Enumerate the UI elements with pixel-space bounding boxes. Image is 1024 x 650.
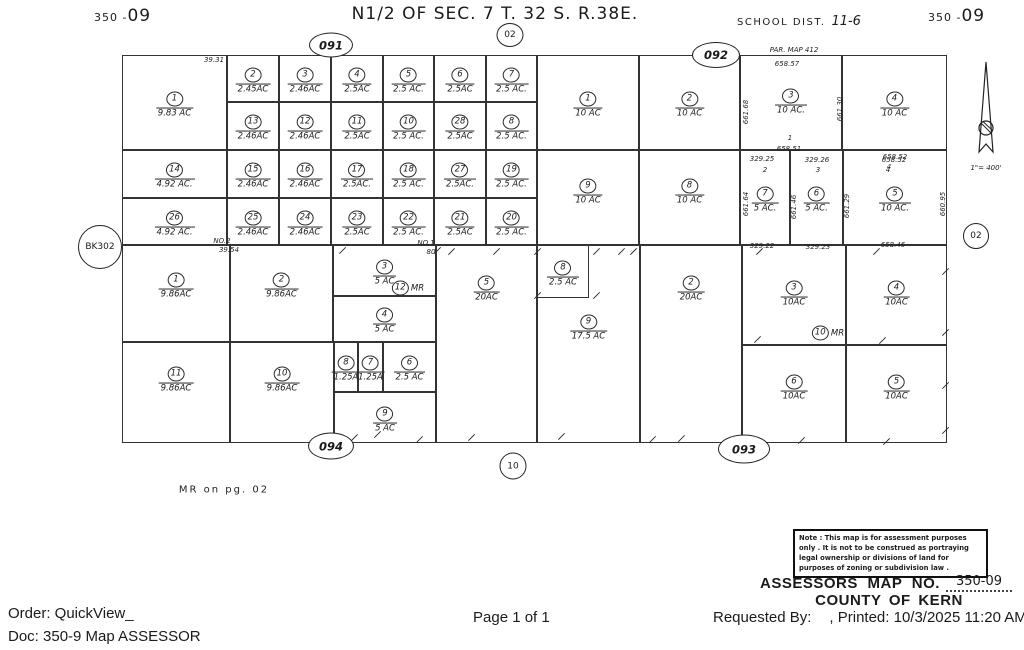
assessor-map-no-label: ASSESSORS MAP NO. [760, 575, 940, 592]
parcel-number: 22 [400, 210, 417, 225]
parcel-area: 10 AC [573, 107, 602, 118]
parcel-label: 520AC [473, 272, 500, 303]
parcel-label: 282.5AC [445, 111, 474, 142]
parcel-number: 1 [580, 91, 597, 106]
parcel-label: 19.83 AC [156, 87, 193, 118]
parcel-label: 410AC [883, 277, 910, 308]
parcel-area: 2.5AC [342, 131, 371, 142]
parcel-number: 8 [503, 115, 520, 130]
parcel-label: 45 AC [373, 304, 397, 335]
parcel-label: 192.5 AC. [494, 159, 529, 190]
parcel-number: 15 [245, 163, 262, 178]
map-badge-02: 02 [497, 23, 524, 47]
parcel-area: 10 AC [675, 107, 704, 118]
disclaimer-line: Note : This map is for assessment purpos… [799, 534, 982, 544]
parcel-label: 410 AC [880, 88, 909, 119]
footer-requested-label: Requested By: [713, 609, 811, 626]
parcel-area: 9.86AC [159, 289, 194, 300]
assessor-map-no-line: ASSESSORS MAP NO. 350-09 [760, 574, 1012, 592]
map-annotation: 661.30 [836, 97, 844, 122]
parcel-label: 264.92 AC. [154, 206, 194, 237]
parcel-number: 28 [452, 115, 469, 130]
parcel-area: 2.46AC [236, 131, 271, 142]
parcel-number: 10 [400, 115, 417, 130]
parcel-number: 1 [168, 273, 185, 288]
parcel-number: 2 [273, 273, 290, 288]
mr-label: MR [831, 328, 844, 338]
parcel-label: 310 AC. [775, 85, 807, 116]
parcel-label: 82.5 AC. [494, 111, 529, 142]
map-annotation: 329.25 [750, 155, 775, 163]
parcel-area: 5 AC. [752, 203, 779, 214]
map-badge-02: 02 [963, 223, 989, 249]
map-annotation: 658.57 [775, 60, 800, 68]
mr-note: 10MR [812, 326, 844, 341]
parcel-label: 102.5 AC. [391, 111, 426, 142]
parcel-area: 20AC [473, 292, 500, 303]
parcel-number: 4 [886, 92, 903, 107]
map-annotation: 658.51 [777, 145, 802, 153]
parcel-label: 19.86AC [159, 269, 194, 300]
north-arrow-icon [976, 58, 996, 158]
parcel-number: 6 [785, 375, 802, 390]
parcel-number: 20 [503, 210, 520, 225]
parcel-number: 7 [362, 356, 379, 371]
parcel-label: 172.5AC. [341, 159, 373, 190]
parcel-number: 3 [376, 259, 393, 274]
map-annotation: MR on pg. 02 [179, 485, 269, 496]
map-annotation: 1"= 400' [970, 164, 1001, 172]
parcel-number: 10 [274, 367, 291, 382]
footer-order: Order: QuickView_ [8, 605, 134, 622]
parcel-area: 10AC [781, 391, 808, 402]
parcel-area: 1.25A [356, 372, 385, 383]
parcel-label: 222.5 AC. [391, 206, 426, 237]
map-annotation: 658.52 [883, 153, 908, 161]
parcel-number: 16 [297, 163, 314, 178]
parcel-number: 3 [785, 281, 802, 296]
map-annotation: 39.31 [204, 56, 224, 64]
parcel-area: 2.46AC [288, 83, 323, 94]
parcel-number: 23 [349, 210, 366, 225]
map-badge-10: 10 [500, 453, 527, 480]
map-annotation: 80 [427, 248, 436, 256]
map-annotation: NO.1 [417, 239, 434, 247]
footer-page-count: Page 1 of 1 [473, 609, 550, 626]
parcel-area: 2.5AC [342, 83, 371, 94]
map-badge-bk302: BK302 [78, 225, 122, 269]
map-annotation: 661.64 [742, 192, 750, 217]
parcel-label: 112.5AC [342, 111, 371, 142]
parcel-area: 5 AC [373, 422, 397, 433]
map-annotation: 661.68 [742, 100, 750, 125]
parcel-area: 2.46AC [288, 179, 323, 190]
map-annotation: 661.29 [843, 194, 851, 219]
parcel-number: 12 [297, 115, 314, 130]
parcel-label: 510 AC. [879, 183, 911, 214]
parcel-number: 24 [297, 210, 314, 225]
parcel-area: 2.5 AC [394, 372, 426, 383]
footer-printed: , Printed: 10/3/2025 11:20 AM [829, 609, 1024, 626]
map-badge-093: 093 [718, 435, 770, 464]
parcel-label: 162.46AC [288, 159, 323, 190]
parcel-area: 2.5 AC. [391, 179, 426, 190]
parcel-label: 82.5 AC [547, 256, 579, 287]
parcel-label: 32.46AC [288, 63, 323, 94]
parcel-area: 2.5AC [342, 226, 371, 237]
parcel-area: 2.5 AC. [494, 131, 529, 142]
parcel-area: 10 AC [573, 195, 602, 206]
parcel-label: 212.5AC [445, 206, 474, 237]
map-annotation: 329.26 [805, 156, 830, 164]
parcel-number: 11 [168, 367, 185, 382]
map-annotation: 1 [788, 134, 792, 142]
parcel-number: 21 [452, 210, 469, 225]
parcel-label: 202.5 AC. [494, 206, 529, 237]
parcel-label: 152.46AC [236, 159, 271, 190]
parcel-area: 2.5AC [445, 83, 474, 94]
parcel-label: 71.25A [356, 352, 385, 383]
parcel-area: 2.5 AC [547, 276, 579, 287]
map-annotation: PAR. MAP 412 [770, 46, 819, 54]
footer-doc: Doc: 350-9 Map ASSESSOR [8, 628, 201, 645]
parcel-label: 72.5 AC. [494, 63, 529, 94]
map-annotation: 661.46 [790, 195, 798, 220]
parcel-label: 610AC [781, 371, 808, 402]
parcel-area: 9.86AC [159, 383, 194, 394]
parcel-area: 10 AC [880, 108, 909, 119]
parcel-area: 4.92 AC. [154, 226, 194, 237]
parcel-area: 2.5 AC. [494, 179, 529, 190]
parcel-number: 5 [886, 187, 903, 202]
parcel-label: 62.5AC [445, 63, 474, 94]
parcel-label: 109.86AC [265, 363, 300, 394]
parcel-area: 20AC [678, 292, 705, 303]
map-badge-091: 091 [309, 33, 353, 58]
parcel-area: 2.5 AC. [494, 226, 529, 237]
parcel-number: 4 [376, 308, 393, 323]
disclaimer-line: purposes of zoning or subdivision law . [799, 564, 982, 574]
parcel-area: 2.5 AC. [391, 131, 426, 142]
parcel-number: 4 [349, 67, 366, 82]
parcel-number: 9 [377, 406, 394, 421]
parcel-label: 144.92 AC. [154, 159, 194, 190]
parcel-number: 25 [245, 210, 262, 225]
parcel-label: 242.46AC [288, 206, 323, 237]
map-annotation: 3 [816, 166, 820, 174]
parcel-number: 6 [808, 187, 825, 202]
parcel-label: 42.5AC [342, 63, 371, 94]
parcel-area: 2.5AC. [341, 179, 373, 190]
parcel-area: 2.46AC [236, 226, 271, 237]
parcel-label: 272.5AC. [444, 159, 476, 190]
map-badge-092: 092 [692, 42, 740, 68]
map-annotation: 660.95 [939, 192, 947, 217]
map-annotation: 329.22 [750, 242, 775, 250]
parcel-area: 10AC [883, 391, 910, 402]
assessor-map-number: 350-09 [946, 574, 1012, 592]
map-annotation: 658.46 [881, 241, 906, 249]
parcel-number: 7 [503, 67, 520, 82]
parcel-number: 9 [580, 179, 597, 194]
parcel-area: 2.45AC [236, 83, 271, 94]
parcel-number: 7 [757, 187, 774, 202]
parcel-label: 182.5 AC. [391, 159, 426, 190]
map-annotation: 329.23 [806, 243, 831, 251]
parcel-area: 10 AC. [775, 105, 807, 116]
parcel-label: 252.46AC [236, 206, 271, 237]
parcel-number: 6 [401, 356, 418, 371]
parcel-number: 2 [681, 91, 698, 106]
parcel-label: 310AC [781, 277, 808, 308]
parcel-area: 4.92 AC. [154, 179, 194, 190]
parcel-label: 810 AC [675, 175, 704, 206]
parcel-label: 65 AC. [803, 183, 830, 214]
parcel-label: 52.5 AC. [391, 63, 426, 94]
parcel-area: 9.86AC [264, 289, 299, 300]
parcel-number: 3 [297, 67, 314, 82]
parcel-number: 8 [681, 179, 698, 194]
parcel-area: 2.5 AC. [391, 83, 426, 94]
parcel-label: 95 AC [373, 402, 397, 433]
parcel-number: 1 [166, 91, 183, 106]
parcel-number: 11 [349, 115, 366, 130]
parcel-label: 119.86AC [159, 363, 194, 394]
parcel-label: 910 AC [573, 175, 602, 206]
parcel-number: 2 [245, 67, 262, 82]
parcel-number: 26 [166, 210, 183, 225]
parcel-number: 8 [554, 260, 571, 275]
parcel-label: 232.5AC [342, 206, 371, 237]
parcel-number: 12 [392, 281, 409, 296]
parcel-number: 5 [400, 67, 417, 82]
parcel-area: 2.5AC. [444, 179, 476, 190]
parcel-label: 510AC [883, 371, 910, 402]
parcel-number: 14 [166, 163, 183, 178]
parcel-label: 210 AC [675, 87, 704, 118]
parcel-number: 10 [812, 326, 829, 341]
parcel-area: 10AC [781, 297, 808, 308]
parcel-number: 27 [451, 163, 468, 178]
disclaimer-line: legal ownership or divisions of land for [799, 554, 982, 564]
parcel-area: 2.5AC [445, 131, 474, 142]
parcel-number: 5 [888, 375, 905, 390]
map-annotation: 2 [763, 166, 767, 174]
parcel-number: 8 [338, 356, 355, 371]
parcel-area: 10AC [883, 297, 910, 308]
parcel-area: 2.46AC [236, 179, 271, 190]
parcel-area: 10 AC [675, 195, 704, 206]
map-annotation: 4 [887, 163, 891, 171]
parcel-number: 9 [580, 315, 597, 330]
parcel-label: 122.46AC [288, 111, 323, 142]
parcel-label: 75 AC. [752, 183, 779, 214]
parcel-label: 29.86AC [264, 269, 299, 300]
parcel-number: 3 [782, 89, 799, 104]
parcel-label: 110 AC [573, 87, 602, 118]
parcel-label: 22.45AC [236, 63, 271, 94]
parcel-label: 132.46AC [236, 111, 271, 142]
disclaimer-line: only . It is not to be construed as port… [799, 544, 982, 554]
parcel-label: 917.5 AC [570, 311, 607, 342]
parcel-area: 5 AC [373, 324, 397, 335]
map-annotation: NO.2 [213, 237, 230, 245]
parcel-area: 2.46AC [288, 226, 323, 237]
parcel-label: 220AC [678, 272, 705, 303]
map-badge-094: 094 [308, 433, 354, 460]
parcel-area: 17.5 AC [570, 331, 607, 342]
map-annotation: 39.54 [219, 246, 239, 254]
parcel-number: 2 [682, 276, 699, 291]
parcel-number: 18 [400, 163, 417, 178]
parcel-area: 9.83 AC [156, 107, 193, 118]
parcel-area: 2.46AC [288, 131, 323, 142]
parcel-number: 13 [245, 115, 262, 130]
disclaimer-note: Note : This map is for assessment purpos… [793, 529, 988, 578]
parcel-area: 2.5AC [445, 226, 474, 237]
parcel-label: 62.5 AC [394, 352, 426, 383]
parcel-number: 17 [348, 163, 365, 178]
parcel-area: 10 AC. [879, 203, 911, 214]
county-name: COUNTY OF KERN [763, 592, 1015, 609]
parcel-area: 5 AC. [803, 203, 830, 214]
parcel-area: 2.5 AC. [391, 226, 426, 237]
parcel-number: 19 [503, 163, 520, 178]
parcel-number: 4 [888, 281, 905, 296]
mr-label: MR [411, 283, 424, 293]
footer-requested: Requested By:, Printed: 10/3/2025 11:20 … [713, 609, 1024, 626]
parcel-area: 9.86AC [265, 383, 300, 394]
parcel-area: 2.5 AC. [494, 83, 529, 94]
assessor-map-page: 350 -09 N1/2 OF SEC. 7 T. 32 S. R.38E. S… [0, 0, 1024, 650]
parcel-number: 5 [478, 276, 495, 291]
parcel-number: 6 [452, 67, 469, 82]
mr-note: 12MR [392, 281, 424, 296]
